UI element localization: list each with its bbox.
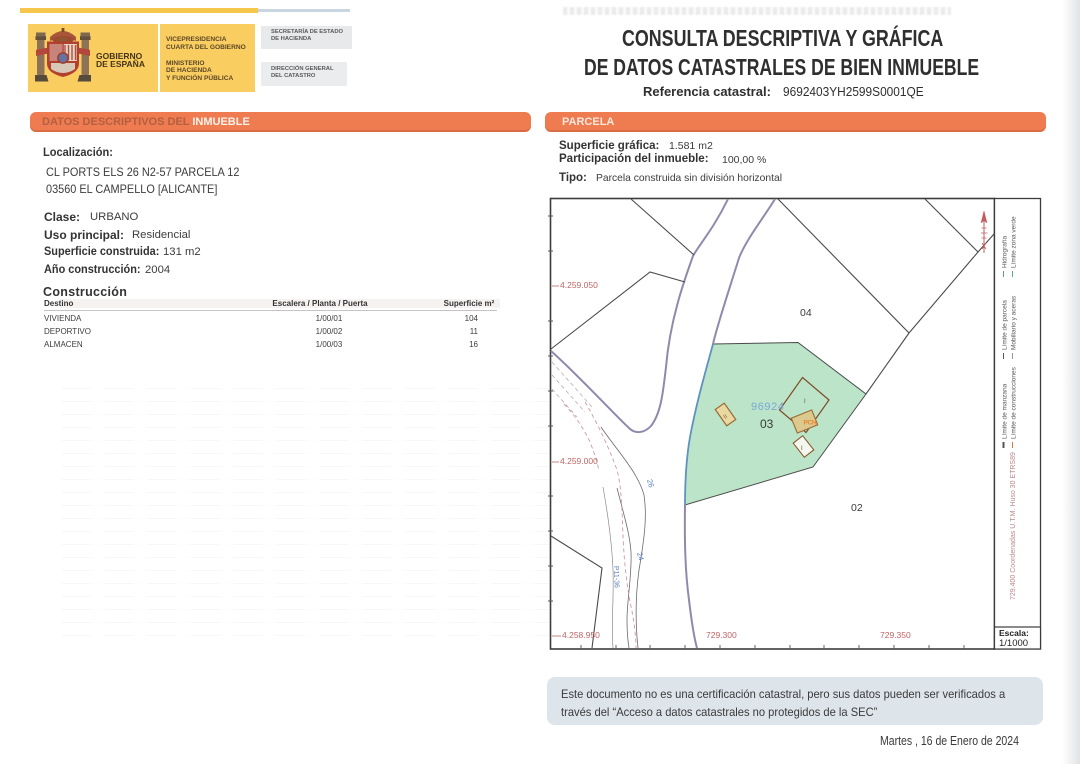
svg-text:Hidrografía: Hidrografía <box>1002 235 1009 268</box>
svg-text:Límite de manzana: Límite de manzana <box>1002 383 1009 439</box>
svg-text:Límite zona verde: Límite zona verde <box>1011 216 1018 268</box>
svg-text:4.259.050: 4.259.050 <box>560 280 598 290</box>
svg-text:02: 02 <box>851 502 863 514</box>
svg-text:1/1000: 1/1000 <box>999 638 1028 649</box>
svg-text:P11-36: P11-36 <box>612 566 620 588</box>
svg-text:729.300: 729.300 <box>706 630 737 640</box>
svg-text:PCH: PCH <box>804 420 817 427</box>
svg-text:729.400 Coordenadas U.T.M. Hus: 729.400 Coordenadas U.T.M. Huso 30 ETRS8… <box>1010 452 1017 600</box>
svg-text:4.259.000: 4.259.000 <box>560 456 598 466</box>
svg-text:4.258.950: 4.258.950 <box>562 630 600 640</box>
svg-text:04: 04 <box>800 307 812 319</box>
svg-text:03: 03 <box>760 417 774 431</box>
svg-text:Límite de construcciones: Límite de construcciones <box>1011 366 1018 439</box>
svg-text:729.350: 729.350 <box>880 630 911 640</box>
svg-text:Mobiliario y aceras: Mobiliario y aceras <box>1011 295 1018 350</box>
svg-text:Límite de parcela: Límite de parcela <box>1002 300 1009 350</box>
svg-text:Escala:: Escala: <box>999 628 1029 638</box>
svg-text:96924: 96924 <box>751 401 785 413</box>
